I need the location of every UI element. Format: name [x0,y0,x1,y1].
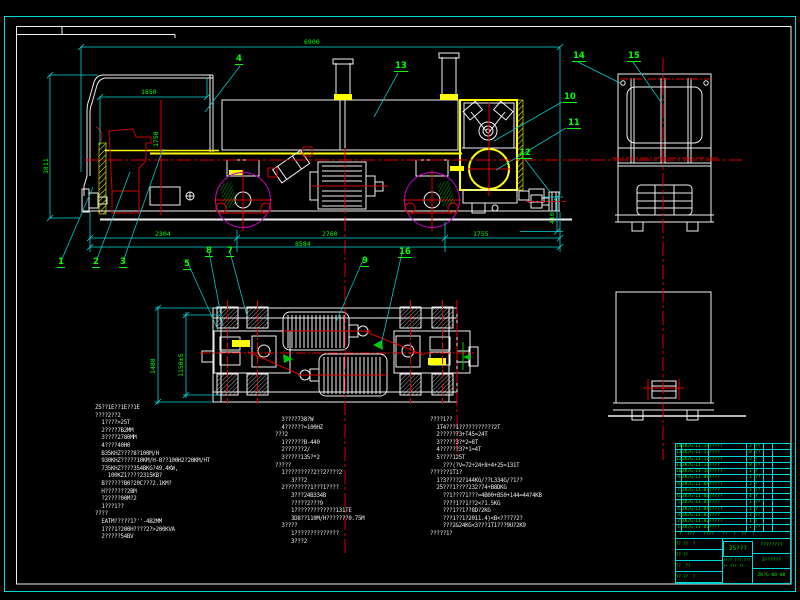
callout-4: 4 [235,55,243,65]
dim-cab-height: 1750 [152,131,160,147]
end-view-top [612,74,718,231]
dim-frame-length: 8584 [295,240,311,248]
dim-cab-width: 1850 [141,88,157,96]
bom-table: 14 ZK7G-II-14 ????? 2 ?? 13 ZK7G-II-13 ?… [676,444,790,532]
signature-grid: ?? ?? ??? ???? ???? ?? ? [676,539,723,583]
dim-span-left: 2304 [155,230,171,238]
callout-10: 10 [563,93,577,103]
dim-overall-length: 6900 [304,38,320,46]
callout-14: 14 [572,52,586,62]
wheelset-2 [403,170,461,231]
flow-arrow-left [283,354,293,363]
callout-1: 1 [57,258,65,268]
side-view-yellow-frame [99,94,464,214]
cad-drawing-sheet: 6900 1850 1750 1811 2304 2760 1755 8584 … [0,0,800,600]
bom-header: ? ??? ???? ?? ? ?? ? [676,532,790,539]
callout-7: 7 [226,247,234,257]
bom-row: 1 ZK7G-II-01 ???? 1 ?? [676,525,790,531]
dim-coupler-height: 410 [548,212,556,224]
traction-motor-side [268,147,388,209]
callout-15: 15 [627,52,641,62]
callout-12: 12 [518,149,532,159]
dim-span-right: 1755 [473,230,489,238]
notes-column-3: ????1?? 1T4???1???????????2T 2?????73+T4… [430,417,600,539]
callout-2: 2 [92,258,100,268]
project-cell: 3?????? [753,554,790,569]
callout-9: 9 [361,257,369,267]
title-block: 14 ZK7G-II-14 ????? 2 ?? 13 ZK7G-II-13 ?… [675,443,791,584]
wheelset-1 [214,170,272,231]
drawing-title: 25??? [723,541,753,557]
callout-leaders [62,62,661,345]
notes-column-1: Z5??1E??1E??1E????2??2 1????>25T 2????7B… [95,405,275,542]
dim-overall-height: 1811 [42,158,50,174]
dim-plan-outer-width: 1488 [149,358,157,374]
callout-8: 8 [205,247,213,257]
drawing-subtitle: ???? ??? ????? ??? ?? [723,557,753,583]
callout-5: 5 [183,260,191,270]
notes-column-2: 3????738?W 4??????=100HZ???2 1??????B-44… [275,417,435,546]
drawing-number-cell: ZK?G-00-00 [753,569,790,584]
callout-11: 11 [567,119,581,129]
dimension-lines [47,44,563,405]
dim-span-mid: 2760 [322,230,338,238]
callout-16: 16 [398,248,412,258]
dim-plan-gauge: 1150±5 [177,354,185,377]
callout-13: 13 [394,62,408,72]
callout-3: 3 [119,258,127,268]
company-cell: ???????? [753,539,790,554]
